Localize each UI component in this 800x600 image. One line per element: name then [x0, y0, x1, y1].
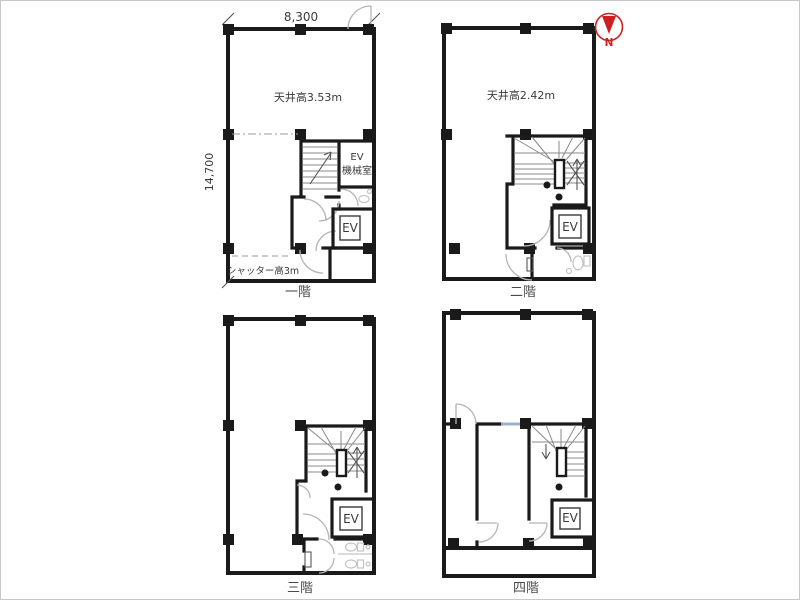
floor-plan-2f: EV N 天井高2.42m 二階 — [441, 14, 623, 301]
columns-1f — [223, 24, 374, 254]
dimension-height-label: 14,700 — [203, 153, 216, 192]
ev-machine-room-label-line1: EV — [350, 152, 363, 163]
elevator-1f: EV — [333, 209, 374, 248]
north-arrow-icon: N — [596, 14, 623, 50]
floor-plan-3f: EV 三階 — [223, 315, 374, 596]
stairs-2f — [514, 137, 585, 201]
stairs-3f — [308, 427, 365, 491]
elevator-4f: EV — [552, 500, 594, 537]
elevator-2f: EV — [552, 208, 589, 244]
floor-name-label-2f: 二階 — [510, 285, 536, 300]
elevator-label-4f: EV — [562, 511, 579, 525]
door-leaf-3f — [305, 552, 311, 567]
dimension-width-label: 8,300 — [284, 10, 318, 24]
stair-direction-arrow-icon — [310, 152, 331, 184]
elevator-label-3f: EV — [343, 512, 360, 526]
elevator-label-1f: EV — [342, 221, 359, 235]
stairs-4f — [532, 425, 585, 491]
floor-plan-drawing: EV 天井高3.53m EV 機械室 シャッター高3m 一階 8,300 14,… — [1, 1, 799, 599]
elevator-label-2f: EV — [562, 220, 579, 234]
floor-plan-1f: EV 天井高3.53m EV 機械室 シャッター高3m 一階 8,300 14,… — [203, 6, 380, 300]
stair-direction-arrow-icon — [348, 447, 364, 478]
elevator-3f: EV — [332, 499, 374, 537]
floor-plan-sheet: EV 天井高3.53m EV 機械室 シャッター高3m 一階 8,300 14,… — [0, 0, 800, 600]
stair-center-wall — [557, 448, 566, 476]
wc-1f — [341, 189, 372, 206]
floor-name-label-4f: 四階 — [513, 581, 539, 596]
stair-center-wall — [555, 160, 564, 188]
north-label: N — [605, 37, 614, 49]
stairs-1f — [303, 147, 337, 189]
floor-name-label-1f: 一階 — [285, 285, 311, 300]
shutter-note-label: シャッター高3m — [227, 265, 299, 277]
floor-name-label-3f: 三階 — [287, 581, 313, 596]
door-arcs-3f — [297, 485, 334, 573]
toilet-fixtures-3f — [338, 543, 372, 568]
stair-down-arrow-icon — [542, 444, 550, 459]
stair-center-wall — [337, 450, 346, 476]
floor-plan-4f: EV 四階 — [444, 309, 594, 596]
stair-direction-arrow-icon — [567, 159, 584, 190]
ceiling-height-label-2f: 天井高2.42m — [487, 88, 555, 102]
ev-machine-room-label-line2: 機械室 — [342, 164, 372, 177]
ceiling-height-label-1f: 天井高3.53m — [274, 90, 342, 104]
